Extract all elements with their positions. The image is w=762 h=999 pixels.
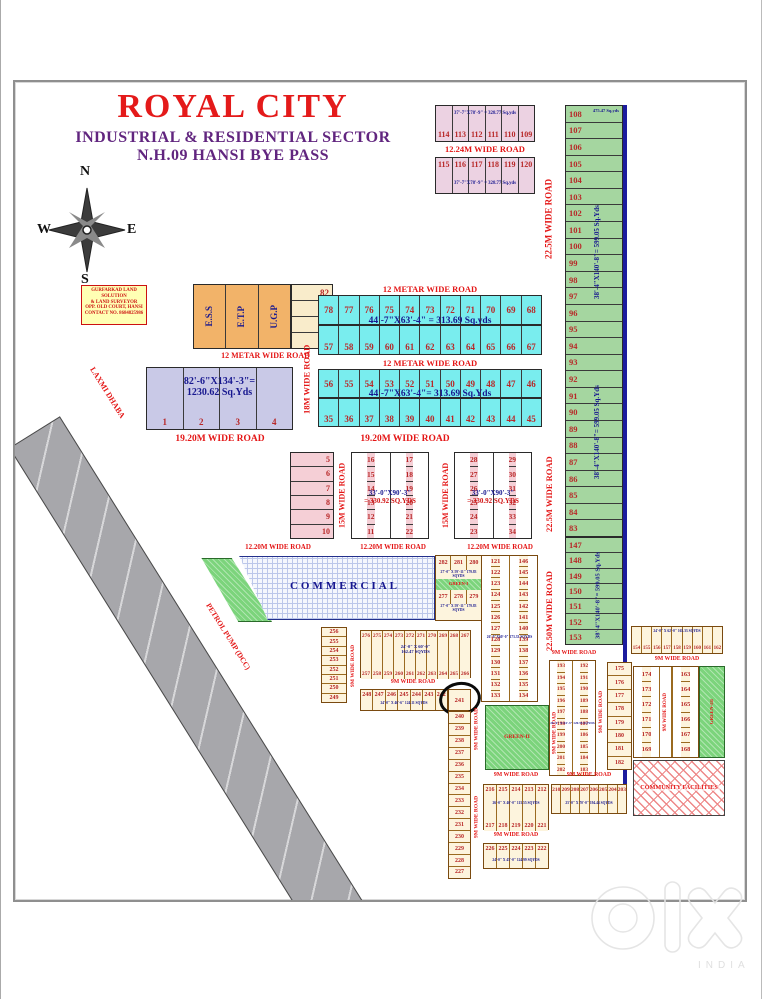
road-label-9m-v5: 9M WIDE ROAD [596,662,607,762]
pink-row-115-120: 115116117118119120 [435,157,535,194]
plot: 181 [608,743,631,756]
block-222-226: 226225224223222 [483,843,549,869]
plot: 12 [367,510,375,524]
road-label-1220-c: 12.20M WIDE ROAD [455,544,545,551]
compass-e: E [127,222,136,238]
plot: 226 [484,844,497,868]
plot: 263 [427,655,438,679]
plot: 178 [608,703,631,716]
blockA-dim: 33'-0"X90'-3" = 330.92 SQ.YDS [351,489,429,505]
page: ROYAL CITY INDUSTRIAL & RESIDENTIAL SECT… [0,0,762,999]
plot: 195 [557,684,565,696]
plot: 138 [519,646,529,657]
plot: 184 [580,753,588,765]
subtitle-sector: INDUSTRIAL & RESIDENTIAL SECTOR [43,129,423,147]
plot: 122 [491,567,501,578]
plot: 201 [557,753,565,765]
plot: 136 [519,668,529,679]
main-road-top-label: MAIN HISAR ROAD [83,400,133,473]
plot: 10 [291,525,333,538]
olx-logo-icon: INDIA [583,876,755,976]
plot: 194 [557,673,565,685]
plot: 140 [519,623,529,634]
green-strip-dim-a: 38'-4"X140'-8"= 599.05 Sq.Yds [591,157,605,347]
plot: 29 [509,453,517,467]
road-label-12metar-b: 12 METAR WIDE ROAD [318,285,542,294]
blockA-dim2: = 330.92 SQ.YDS [351,497,429,505]
green-3-area: GREEN-III [699,666,725,758]
plot: 217 [484,808,497,831]
plot: 176 [608,676,631,689]
plot: 223 [523,844,536,868]
plot: 177 [608,690,631,703]
plot: 120 [519,158,535,193]
block-163-174: 174173172171170169 9M WIDE ROAD 16316416… [633,666,699,758]
plot: 163 [681,667,691,682]
contact-line1: GURFARKAD LAND SOLUTION [82,288,146,300]
commercial-label: COMMERCIAL [265,580,425,592]
plot: 280 [467,556,481,570]
plot: 9 [291,510,333,524]
rows267-dim: 24'-0" X 60'-0" 162.47 SQYDS [360,644,471,654]
plot: 182 [608,757,631,769]
plot: 235 [449,772,470,784]
plot: 57 [319,326,339,354]
plot: 227 [449,867,470,878]
plot: 143 [519,590,529,601]
plot: 17 [406,453,414,467]
green1-label: GREEN-I [449,582,468,587]
plot: 266 [460,655,470,679]
plot: 11 [367,525,374,538]
green3-label: GREEN-III [710,699,715,724]
plot: 238 [449,736,470,748]
plot: 243 [423,690,435,710]
plot: 175 [608,663,631,676]
plot: 224 [510,844,523,868]
rows267-dim2: 162.47 SQYDS [360,649,471,654]
plot: 252 [322,666,346,675]
road-label-18m: 18M WIDE ROAD [298,332,315,427]
plot: 23 [470,525,478,538]
plot: 277 [436,590,451,604]
plot: 220 [523,808,536,831]
plot: 61 [400,326,420,354]
green-strip-dim-c: 38'-4"X140'-8"= 599.05 Sq.Yds [591,550,605,640]
plot: 192 [580,661,588,673]
community-label: COMMUNITY FACILITIES [638,785,720,791]
plot: 167 [681,728,691,743]
block280-dim-a: 27'-0" X 59'-11" 179.83 SQYDS [436,570,481,579]
plot: 193 [557,661,565,673]
plot: 174 [642,667,652,682]
big4-dim-line1: 82'-6"X134'-3"= [146,376,293,387]
plot: 137 [519,657,529,668]
plot: 233 [449,795,470,807]
plot: 245 [398,690,410,710]
plot: 129 [491,646,501,657]
col-227-240: 2402392382372362352342332322312302292282… [448,711,471,879]
plot: 255 [322,637,346,646]
col-175-182: 175176177178179180181182 [607,662,632,770]
cyan1-dim: 44'-7"X63'-4" = 313.69 Sq.yds [318,316,542,327]
plot: 219 [510,808,523,831]
plot: 64 [461,326,481,354]
plot: 186 [580,730,588,742]
plot: 197 [557,707,565,719]
plot: 230 [449,831,470,843]
plot: 15 [367,467,375,481]
big4-dim: 82'-6"X134'-3"= 1230.62 Sq.Yds [146,376,293,398]
page-title: ROYAL CITY [43,88,423,126]
plot: 124 [491,590,501,601]
road-label-1220-a: 12.20M WIDE ROAD [228,544,328,551]
plot: 254 [322,647,346,656]
contact-line4: CONTACT NO. 8684825986 [82,311,146,317]
plot: 229 [449,843,470,855]
plot: 278 [451,590,466,604]
plot: 33 [509,510,517,524]
toppink-dim-a: 37'-7"X78'-9" = 328.77 Sq.yds [435,111,535,117]
plot: 58 [339,326,359,354]
road-label-1920-b: 19.20M WIDE ROAD [330,435,480,445]
plot: 208 [571,785,580,813]
plot: 121 [491,556,501,567]
plot: 261 [405,655,416,679]
block212-dim: 26'-0" X 40'-0" 115.55 SQYDS [483,801,549,805]
plot: 27 [470,467,478,481]
plot: 169 [642,743,652,757]
olx-country-text: INDIA [698,960,750,971]
plot: 258 [372,655,383,679]
road-label-9m-h6: 9M WIDE ROAD [483,833,549,839]
road-label-1220-b: 12.20M WIDE ROAD [348,544,438,551]
plot: 264 [438,655,449,679]
plot: 203 [618,785,626,813]
road-label-12metar-a: 12 METAR WIDE ROAD [193,352,338,360]
plot: 221 [536,808,548,831]
plot: 37 [360,399,380,426]
plot: 180 [608,730,631,743]
plot: 142 [519,601,529,612]
plot: 260 [394,655,405,679]
plot: 144 [519,578,529,589]
plot: 191 [580,673,588,685]
plot: 232 [449,807,470,819]
plot: 41 [441,399,461,426]
blockB-dim1: 33'-0"X90'-3" [454,489,532,497]
road-label-1224: 12.24M WIDE ROAD [435,145,535,154]
plot: 259 [383,655,394,679]
block280-dim-b: 27'-0" X 59'-11" 179.83 SQYDS [436,604,481,613]
green-2-area: GREEN-II [485,705,549,770]
plot: 123 [491,578,501,589]
subtitle-highway: N.H.09 HANSI BYE PASS [43,147,423,165]
plot: 218 [497,808,510,831]
plot: 210 [552,785,561,813]
road-label-9m-h3: 9M WIDE ROAD [639,657,715,663]
plot: 36 [339,399,359,426]
big4-dim-line2: 1230.62 Sq.Yds [146,387,293,398]
plot: 188 [580,707,588,719]
plot: 257 [361,655,372,679]
plot: 165 [681,697,691,712]
plot: 239 [449,724,470,736]
plot: 43 [481,399,501,426]
road-label-9m-v6: 9M WIDE ROAD [660,693,671,731]
plot: 222 [536,844,548,868]
plot: 66 [501,326,521,354]
plot: 228 [449,855,470,867]
plot: 39 [400,399,420,426]
plot: 5 [291,453,333,467]
plot: 21 [406,510,414,524]
road-label-9m-v3: 9M WIDE ROAD [471,782,483,852]
plot: 107 [566,123,622,140]
map-frame: ROYAL CITY INDUSTRIAL & RESIDENTIAL SECT… [13,80,747,902]
plot: 251 [322,675,346,684]
plot: 60 [380,326,400,354]
plot: 253 [322,656,346,665]
plot: 135 [519,680,529,691]
plot: 209 [561,785,570,813]
plot108-note: 475.47 Sq.yds [587,108,625,113]
plot: 62 [420,326,440,354]
road-label-15m-b: 15M WIDE ROAD [438,452,454,539]
cyan2-dim: 44'-7"X63'-4"= 313.69 Sq.Yds [318,389,542,400]
plot: 145 [519,567,529,578]
utility-ugp: U.G.P [259,285,290,348]
plot: 141 [519,612,529,623]
row154-dim: 24'-0" X 62'-0" 165.33 SQYDS [631,629,723,633]
strip121-dim: 26'-0"X60'-0" 173.33 SQYDS [481,635,538,639]
road-label-225-a: 22.5M WIDE ROAD [541,114,557,324]
plot: 190 [580,684,588,696]
plot: 134 [519,691,529,701]
plot: 171 [642,713,652,728]
plot: 170 [642,728,652,743]
plots-5-10: 5678910 [290,452,334,539]
plot: 204 [608,785,617,813]
block193-dim: 20'-0" X 54'-3" 120.55 SQYDS [549,722,596,726]
plot: 126 [491,612,501,623]
block-203-210: 210209208207206205204203 [551,784,627,814]
plot: 262 [416,655,427,679]
plot: 131 [491,668,501,679]
plot: 59 [360,326,380,354]
plot: 250 [322,684,346,693]
strip-121-146: 121122123124125126127128129130131132133 … [481,555,538,702]
row-242-248: 248247246245244243242 [360,689,448,711]
plot: 282 [436,556,451,570]
plot: 7 [291,482,333,496]
plot: 200 [557,742,565,754]
cyan-row-57-67: 5758596061626364656667 [318,325,542,355]
plot: 146 [519,556,529,567]
utility-block: E.S.S E.T.P U.G.P [193,284,291,349]
plot: 130 [491,657,501,668]
road-label-1920-a: 19.20M WIDE ROAD [140,435,300,445]
plot: 205 [599,785,608,813]
blockB-dim2: = 330.92 SQ.YDS [454,497,532,505]
plot: 28 [470,453,478,467]
plot: 179 [608,717,631,730]
plot: 35 [319,399,339,426]
plot: 231 [449,819,470,831]
road-label-9m-v2: 9M WIDE ROAD [471,694,483,764]
plot: 63 [441,326,461,354]
plot: 34 [509,525,517,538]
blockB-dim: 33'-0"X90'-3" = 330.92 SQ.YDS [454,489,532,505]
plot: 42 [461,399,481,426]
plot: 247 [373,690,385,710]
road-label-9m-v1: 9M WIDE ROAD [347,630,360,702]
plot: 237 [449,748,470,760]
plot: 118 [486,158,503,193]
plot: 240 [449,712,470,724]
plot: 116 [453,158,470,193]
plot: 199 [557,730,565,742]
road-label-12metar-c: 12 METAR WIDE ROAD [318,359,542,368]
cyan-row-35-45: 3536373839404142434445 [318,398,542,427]
plot: 236 [449,760,470,772]
plot: 265 [449,655,460,679]
row248-dim: 24'-0" X 46'-6" 124.11 SQYDS [360,701,448,705]
green2-label: GREEN-II [504,735,530,741]
plot: 30 [509,467,517,481]
plot: 207 [580,785,589,813]
toppink-dim-b: 37'-7"X78'-9" = 328.77 Sq.yds [435,181,535,187]
plot: 185 [580,742,588,754]
plot: 133 [491,691,501,701]
plot: 281 [451,556,466,570]
road-label-225-b: 22.5M WIDE ROAD [541,447,557,542]
to-delhi-label: TO DELHI [336,810,381,873]
plot: 117 [469,158,486,193]
road-label-9m-h5: 9M WIDE ROAD [551,773,627,779]
plot: 244 [411,690,423,710]
plot: 246 [386,690,398,710]
title-block: ROYAL CITY INDUSTRIAL & RESIDENTIAL SECT… [43,88,423,165]
plot: 225 [497,844,510,868]
plot: 127 [491,623,501,634]
plot: 22 [406,525,414,538]
plot: 132 [491,680,501,691]
compass-w: W [37,222,51,238]
plot: 164 [681,682,691,697]
plot: 44 [501,399,521,426]
compass: N E S W [39,166,135,292]
contact-box: GURFARKAD LAND SOLUTION & LAND SURVEYOR … [81,285,147,325]
plot: 119 [502,158,519,193]
plot: 6 [291,467,333,481]
plot: 24 [470,510,478,524]
plot: 173 [642,682,652,697]
plot: 16 [367,453,375,467]
road-label-9m-h4: 9M WIDE ROAD [483,773,549,779]
plot: 189 [580,696,588,708]
community-facilities: COMMUNITY FACILITIES [633,760,725,816]
plot: 248 [361,690,373,710]
plot: 40 [420,399,440,426]
plot: 106 [566,139,622,156]
plot: 67 [522,326,541,354]
plot: 234 [449,784,470,796]
plot: 125 [491,601,501,612]
plot: 172 [642,697,652,712]
blockA-dim1: 33'-0"X90'-3" [351,489,429,497]
plot: 65 [481,326,501,354]
compass-n: N [80,164,90,180]
utility-etp: E.T.P [226,285,258,348]
plot: 206 [590,785,599,813]
block-212-221: 216215214213212 217218219220221 [483,784,549,830]
plot: 8 [291,496,333,510]
utility-ess: E.S.S [194,285,226,348]
road-label-9m-h2: 9M WIDE ROAD [543,651,605,657]
col-249-256: 256255254253252251250249 [321,627,347,703]
green-strip-dim-b: 38'-4"X140'-8"= 599.05 Sq.Yds [591,337,605,527]
plot: 256 [322,628,346,637]
block-183-202: 193194195196197198199200201202 192191190… [549,660,596,776]
plot: 38 [380,399,400,426]
block-277-282: 282281280 27'-0" X 59'-11" 179.83 SQYDS … [435,555,482,621]
plot: 168 [681,743,691,757]
plot: 166 [681,713,691,728]
olx-watermark: INDIA [583,876,755,976]
plot: 196 [557,696,565,708]
plot: 45 [522,399,541,426]
plot: 249 [322,694,346,702]
plot: 115 [436,158,453,193]
block222-dim: 24'-0" X 45'-0" 124.99 SQYDS [483,858,549,862]
plot: 18 [406,467,414,481]
plot: 279 [467,590,481,604]
road-label-15m-a: 15M WIDE ROAD [334,452,351,539]
block203-dim: 25'-0" X 70'-0" 194.44 SQYDS [551,801,627,805]
